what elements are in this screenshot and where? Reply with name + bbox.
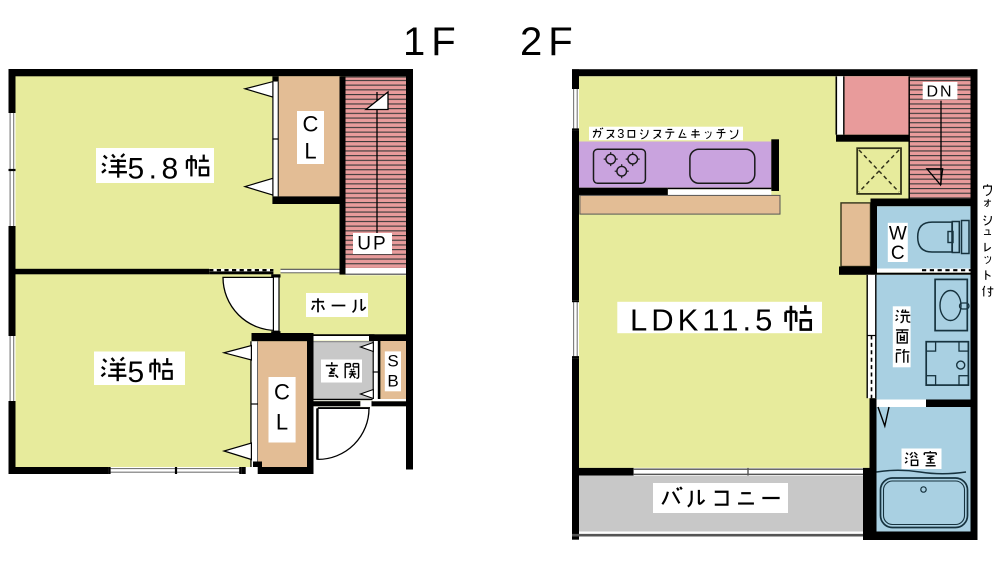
svg-text:1F: 1F: [403, 20, 462, 64]
svg-text:C: C: [274, 380, 290, 405]
svg-text:L: L: [304, 139, 316, 164]
svg-text:2F: 2F: [520, 20, 579, 64]
svg-text:W: W: [889, 224, 907, 245]
svg-text:L: L: [276, 410, 288, 435]
svg-text:5: 5: [128, 356, 145, 389]
svg-text:B: B: [387, 372, 398, 391]
svg-text:C: C: [303, 112, 319, 137]
svg-text:LDK11.5: LDK11.5: [630, 303, 776, 338]
svg-text:DN: DN: [926, 84, 953, 101]
svg-text:5.8: 5.8: [128, 153, 183, 186]
svg-text:UP: UP: [357, 234, 387, 255]
svg-text:S: S: [387, 352, 398, 371]
svg-text:3: 3: [617, 126, 624, 141]
svg-text:C: C: [891, 243, 905, 264]
